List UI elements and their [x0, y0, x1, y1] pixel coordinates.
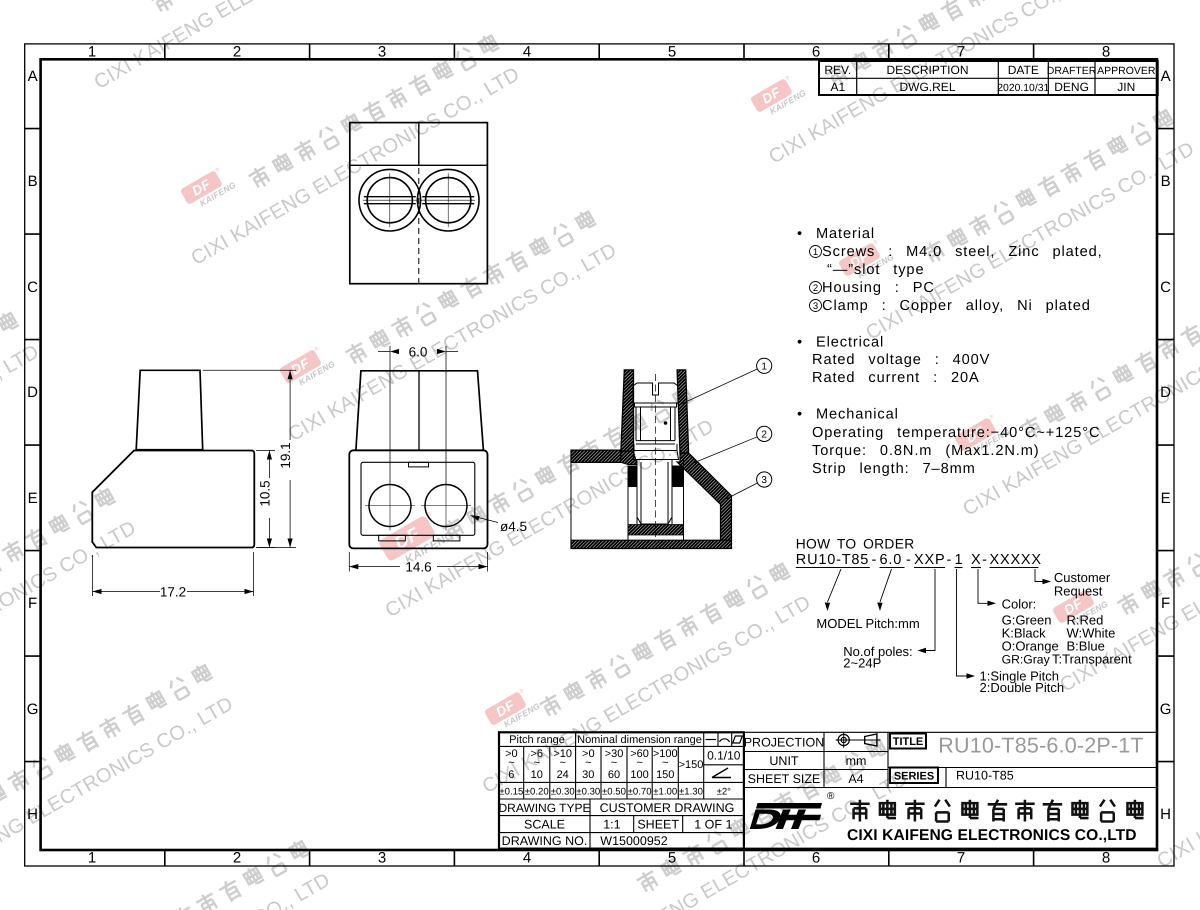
svg-text:±0.15: ±0.15 — [499, 787, 523, 798]
svg-text:T:Transparent: T:Transparent — [1052, 652, 1132, 667]
svg-text:±0.20: ±0.20 — [525, 787, 549, 798]
svg-text:DRAWING TYPE: DRAWING TYPE — [498, 801, 590, 815]
svg-text:60: 60 — [608, 769, 620, 781]
svg-text:X: X — [971, 552, 981, 568]
svg-text:E: E — [28, 490, 38, 507]
svg-text:XXXXX: XXXXX — [990, 552, 1042, 568]
svg-text:DRAWING NO.: DRAWING NO. — [502, 834, 588, 848]
svg-text:HOW TO ORDER: HOW TO ORDER — [796, 537, 915, 552]
svg-text:~: ~ — [508, 757, 514, 769]
svg-text:G: G — [27, 701, 39, 718]
svg-text:1: 1 — [813, 247, 818, 258]
svg-text:-: - — [982, 552, 988, 568]
svg-text:F: F — [28, 595, 37, 612]
svg-text:6.0: 6.0 — [409, 344, 428, 359]
svg-text:CIXI KAIFENG ELECTRONICS CO.,L: CIXI KAIFENG ELECTRONICS CO.,LTD — [847, 827, 1137, 844]
svg-text:2: 2 — [233, 850, 241, 867]
svg-text:1: 1 — [88, 44, 96, 61]
svg-text:10.5: 10.5 — [257, 480, 272, 506]
svg-text:Operating temperature:−40°C~+1: Operating temperature:−40°C~+125°C — [812, 425, 1100, 441]
svg-text:150: 150 — [656, 769, 674, 781]
svg-text:~: ~ — [534, 757, 540, 769]
svg-text:2020.10/31: 2020.10/31 — [997, 83, 1049, 94]
svg-text:3: 3 — [378, 850, 386, 867]
svg-text:0.1/10: 0.1/10 — [707, 749, 741, 763]
svg-text:UNIT: UNIT — [769, 754, 799, 768]
svg-text:5: 5 — [668, 850, 676, 867]
svg-text:7: 7 — [957, 44, 965, 61]
svg-text:A: A — [1161, 68, 1171, 85]
svg-text:Housing : PC: Housing : PC — [822, 280, 935, 296]
svg-text:PROJECTION: PROJECTION — [744, 736, 825, 750]
svg-text:~: ~ — [611, 757, 617, 769]
svg-text:®: ® — [827, 791, 835, 802]
svg-text:~: ~ — [559, 757, 565, 769]
svg-text:C: C — [27, 279, 38, 296]
svg-text:A: A — [28, 68, 38, 85]
svg-text:B: B — [1161, 173, 1171, 190]
svg-text:±1.00: ±1.00 — [653, 787, 677, 798]
svg-text:Clamp : Copper alloy, Ni plate: Clamp : Copper alloy, Ni plated — [822, 298, 1091, 314]
svg-text:30: 30 — [582, 769, 594, 781]
svg-text:24: 24 — [557, 769, 569, 781]
svg-text:Color:: Color: — [1002, 597, 1037, 612]
svg-text:1: 1 — [761, 361, 767, 372]
svg-text:DWG.REL: DWG.REL — [899, 80, 955, 94]
svg-text:mm: mm — [846, 754, 867, 768]
svg-text:Screws : M4.0 steel, Zinc plat: Screws : M4.0 steel, Zinc plated, — [822, 244, 1103, 260]
svg-text:REV.: REV. — [824, 63, 851, 77]
svg-text:Pitch:mm: Pitch:mm — [866, 616, 920, 631]
svg-text:RU10-T85: RU10-T85 — [796, 552, 869, 568]
svg-text:RU10-T85-6.0-2P-1T: RU10-T85-6.0-2P-1T — [938, 734, 1144, 758]
svg-text:Strip length: 7–8mm: Strip length: 7–8mm — [812, 461, 976, 477]
svg-text:TITLE: TITLE — [893, 736, 924, 748]
svg-text:6: 6 — [508, 769, 514, 781]
svg-text:~: ~ — [662, 757, 668, 769]
svg-text:APPROVER: APPROVER — [1097, 65, 1156, 77]
svg-text:±1.30: ±1.30 — [679, 787, 703, 798]
svg-text:2: 2 — [761, 430, 767, 441]
svg-text:Torque: 0.8N.m (Max1.2N.m): Torque: 0.8N.m (Max1.2N.m) — [812, 443, 1040, 459]
svg-text:CUSTOMER DRAWING: CUSTOMER DRAWING — [600, 801, 735, 815]
svg-text:JIN: JIN — [1117, 80, 1135, 94]
svg-text:• Material: • Material — [797, 226, 875, 242]
svg-text:5: 5 — [668, 44, 676, 61]
svg-text:Nominal dimension range: Nominal dimension range — [577, 734, 702, 746]
svg-text:14.6: 14.6 — [405, 560, 431, 575]
svg-text:±0.30: ±0.30 — [551, 787, 575, 798]
svg-text:3: 3 — [378, 44, 386, 61]
svg-text:2: 2 — [813, 283, 818, 294]
svg-text:2: 2 — [233, 44, 241, 61]
svg-text:~: ~ — [636, 757, 642, 769]
svg-text:“—”slot type: “—”slot type — [827, 262, 924, 278]
svg-text:3: 3 — [813, 301, 818, 312]
svg-text:4: 4 — [523, 850, 531, 867]
svg-text:A4: A4 — [848, 772, 863, 786]
svg-text:±2°: ±2° — [717, 787, 732, 798]
svg-text:±0.70: ±0.70 — [628, 787, 652, 798]
svg-text:1: 1 — [88, 850, 96, 867]
svg-text:>150: >150 — [679, 759, 704, 771]
svg-text:-: - — [872, 552, 878, 568]
svg-text:Request: Request — [1054, 584, 1103, 599]
svg-text:E: E — [1161, 490, 1171, 507]
svg-text:6: 6 — [812, 850, 820, 867]
svg-text:~: ~ — [585, 757, 591, 769]
svg-text:SERIES: SERIES — [894, 771, 934, 783]
svg-text:W15000952: W15000952 — [600, 834, 667, 848]
svg-text:2:Double Pitch: 2:Double Pitch — [980, 680, 1065, 695]
svg-text:O:Orange: O:Orange — [1002, 639, 1059, 654]
svg-text:2~24P: 2~24P — [843, 656, 881, 671]
svg-text:B: B — [28, 173, 38, 190]
svg-text:10: 10 — [531, 769, 543, 781]
svg-text:G: G — [1160, 701, 1172, 718]
svg-text:A1: A1 — [830, 80, 845, 94]
svg-text:SHEET SIZE: SHEET SIZE — [748, 772, 821, 786]
svg-text:ø4.5: ø4.5 — [500, 519, 527, 534]
svg-text:-: - — [947, 552, 953, 568]
svg-text:H: H — [1160, 806, 1171, 823]
svg-text:RU10-T85: RU10-T85 — [956, 769, 1014, 783]
svg-text:19.1: 19.1 — [278, 442, 293, 468]
svg-text:D: D — [27, 384, 38, 401]
svg-text:• Electrical: • Electrical — [797, 335, 884, 351]
svg-text:8: 8 — [1102, 850, 1110, 867]
svg-text:1: 1 — [955, 552, 964, 568]
svg-text:1 OF 1: 1 OF 1 — [694, 818, 732, 832]
svg-text:6.0: 6.0 — [880, 552, 903, 568]
svg-text:100: 100 — [630, 769, 648, 781]
svg-text:MODEL: MODEL — [816, 616, 862, 631]
svg-text:-: - — [906, 552, 912, 568]
svg-text:6: 6 — [812, 44, 820, 61]
svg-text:7: 7 — [957, 850, 965, 867]
svg-text:Rated voltage : 400V: Rated voltage : 400V — [812, 352, 990, 368]
svg-text:H: H — [27, 806, 38, 823]
svg-text:GR:Gray: GR:Gray — [1002, 653, 1051, 667]
svg-text:XXP: XXP — [914, 552, 945, 568]
svg-text:±0.30: ±0.30 — [576, 787, 600, 798]
svg-text:SHEET: SHEET — [637, 818, 679, 832]
svg-text:D: D — [1160, 384, 1171, 401]
svg-text:DENG: DENG — [1054, 80, 1089, 94]
svg-text:4: 4 — [523, 44, 531, 61]
svg-text:Rated current : 20A: Rated current : 20A — [812, 370, 980, 386]
svg-text:1:1: 1:1 — [603, 818, 620, 832]
svg-text:• Mechanical: • Mechanical — [797, 407, 899, 423]
svg-text:DRAFTER: DRAFTER — [1047, 65, 1097, 77]
svg-text:DESCRIPTION: DESCRIPTION — [886, 63, 968, 77]
svg-text:3: 3 — [761, 475, 767, 486]
svg-text:F: F — [1161, 595, 1170, 612]
svg-text:Pitch range: Pitch range — [509, 734, 565, 746]
svg-text:±0.50: ±0.50 — [602, 787, 626, 798]
svg-text:C: C — [1160, 279, 1171, 296]
svg-text:SCALE: SCALE — [524, 818, 565, 832]
svg-text:DATE: DATE — [1008, 63, 1039, 77]
svg-text:17.2: 17.2 — [160, 584, 186, 599]
svg-text:8: 8 — [1102, 44, 1110, 61]
